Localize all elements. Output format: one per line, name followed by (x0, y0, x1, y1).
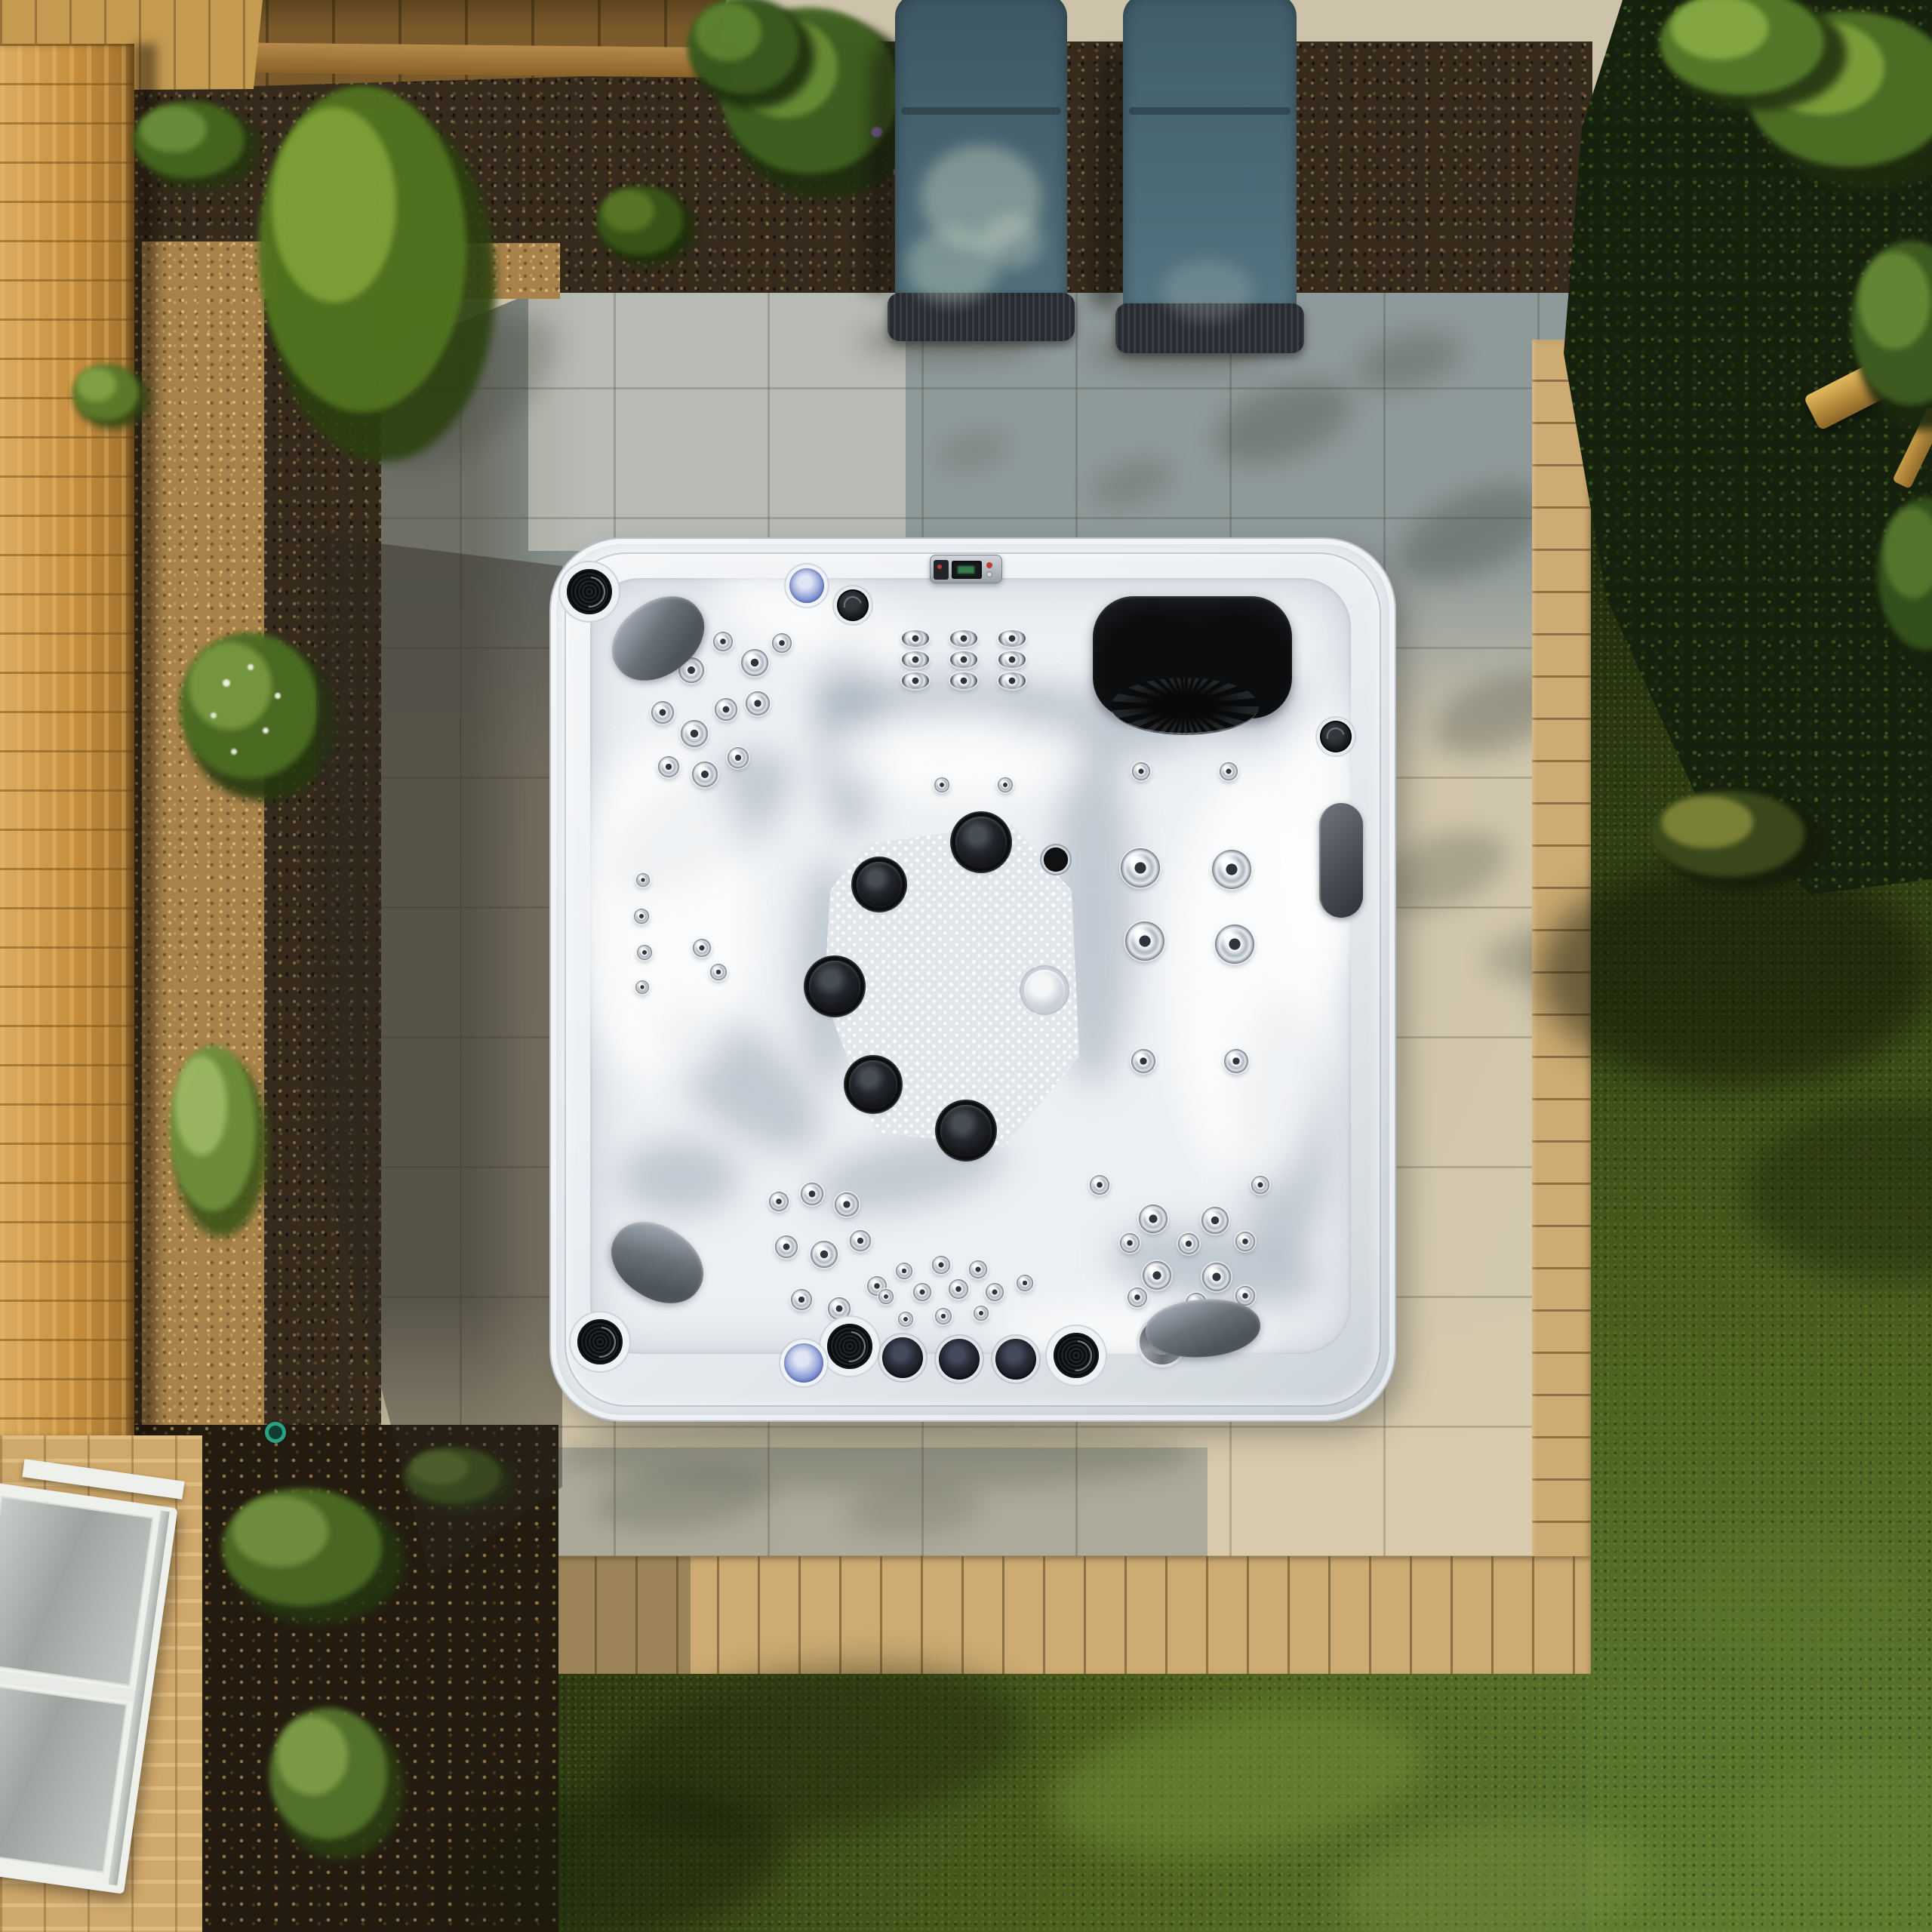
basin-contour-highlight (1275, 679, 1351, 981)
basin-contour-shadow (619, 1140, 740, 1215)
cold-frame-pane-bottom (0, 1683, 128, 1873)
cold-frame-pane-top (0, 1496, 154, 1686)
golden-gravel-path (142, 241, 264, 1430)
fence-left-shadow (134, 44, 157, 1438)
basin-contour-shadow (998, 688, 1194, 761)
basin-contour-highlight (830, 709, 1087, 800)
basin-contour-highlight (590, 740, 755, 1087)
basin-contour-highlight (703, 578, 927, 691)
basin-contour-shadow (1105, 1216, 1324, 1320)
basin-contour-highlight (989, 1306, 1275, 1354)
basin-contour-shadow (1155, 679, 1336, 740)
garden-aerial-photo: Aerial view of a white square hot tub on… (0, 0, 1932, 1932)
basin-contour-highlight (1170, 770, 1336, 1192)
basin-contour-shadow (590, 725, 814, 921)
basin-contour-shadow (635, 981, 844, 1177)
golden-gravel-patch (249, 243, 560, 299)
basin-contour-shadow (815, 675, 1057, 736)
basin-contour-shadow (1238, 996, 1328, 1268)
brick-border-right (1532, 340, 1591, 1674)
fence-left (0, 44, 134, 1438)
basin-contour-shadow (818, 611, 884, 838)
lawn-bottom-texture (558, 1674, 1591, 1932)
hose-connector (265, 1422, 286, 1443)
